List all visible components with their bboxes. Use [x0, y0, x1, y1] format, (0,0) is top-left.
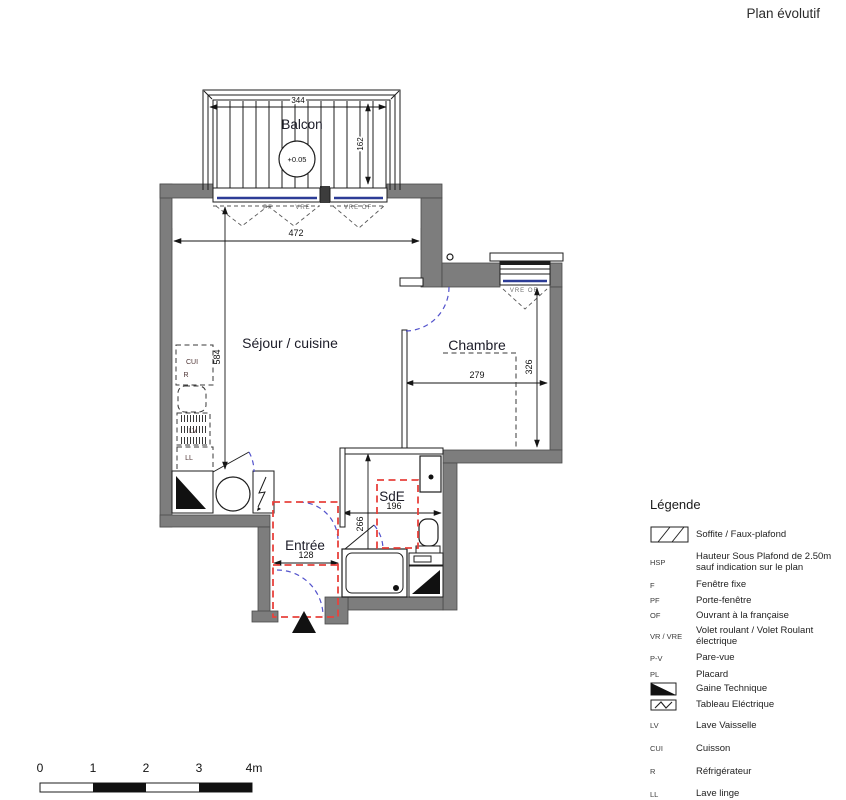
legend-row-pl: PL Placard	[650, 669, 846, 680]
legend-label: Lave linge	[696, 788, 739, 799]
dim-bedroom-width: 279	[469, 370, 484, 380]
legend-row-hsp: HSP Hauteur Sous Plafond de 2.50m sauf i…	[650, 551, 846, 573]
legend-label: Hauteur Sous Plafond de 2.50m	[696, 551, 831, 562]
legend-row-soffit: Soffite / Faux-plafond	[650, 526, 846, 544]
legend-row-pv: P-V Pare-vue	[650, 652, 846, 663]
legend-row-f: F Fenêtre fixe	[650, 579, 846, 590]
shower-room-door-swing	[374, 525, 383, 549]
windows: PF VRE VRE OF VRE OF	[213, 188, 563, 309]
legend-label: Placard	[696, 669, 728, 680]
dim-living-width: 472	[288, 228, 303, 238]
entry-upper-door-swing	[299, 502, 338, 541]
bedroom-door-jamb	[400, 278, 423, 286]
page-title: Plan évolutif	[660, 6, 820, 21]
legend-label: Ouvrant à la française	[696, 610, 789, 621]
toilet	[419, 519, 438, 546]
legend-label: Pare-vue	[696, 652, 735, 663]
legend-key: PF	[650, 596, 696, 605]
legend-row-r: R Réfrigérateur	[650, 766, 846, 777]
scale-tick-4: 4m	[246, 761, 263, 775]
balcony-label: Balcon	[281, 117, 322, 132]
dim-shower-height: 266	[355, 516, 365, 531]
legend-label: Tableau Eléctrique	[696, 699, 774, 710]
kitchen-sink	[178, 386, 206, 412]
legend-key: OF	[650, 611, 696, 620]
fridge-label: R	[183, 372, 188, 379]
legend-row-ll: LL Lave linge	[650, 788, 846, 799]
legend-key: PL	[650, 670, 696, 679]
washer-zone	[177, 447, 213, 473]
water-heater	[216, 477, 250, 511]
scale-tick-1: 1	[90, 761, 97, 775]
dim-balcony-depth: 162	[356, 137, 365, 151]
balcony: +0.05 344 162 Balcon	[203, 90, 400, 190]
washbasin	[420, 456, 441, 492]
bedroom-partition	[402, 330, 407, 450]
legend-key: R	[650, 767, 696, 776]
room-labels: Séjour / cuisine Chambre SdE Entrée	[242, 335, 506, 553]
legend-label: Fenêtre fixe	[696, 579, 746, 590]
soffit-hatch-icon	[650, 526, 690, 544]
window-left	[213, 188, 320, 202]
legend-key: LL	[650, 790, 696, 799]
wall-dot	[447, 254, 453, 260]
scale-tick-2: 2	[143, 761, 150, 775]
legend-label: Gaine Technique	[696, 683, 767, 694]
entry-lower-door-swing	[277, 570, 323, 616]
utility-row	[172, 471, 274, 513]
legend-row-panel: Tableau Eléctrique	[650, 699, 846, 711]
legend-label: Soffite / Faux-plafond	[696, 529, 786, 540]
legend-label: Lave Vaisselle	[696, 720, 757, 731]
legend-row-vr: VR / VRE Volet roulant / Volet Roulant é…	[650, 625, 846, 647]
duct-icon	[650, 682, 678, 696]
bed-outline	[443, 353, 516, 449]
floorplan-page: +0.05 344 162 Balcon PF VRE VRE OF	[0, 0, 846, 800]
legend-label-2: sauf indication sur le plan	[696, 562, 803, 573]
living-door-swing	[249, 452, 254, 472]
legend-label: Réfrigérateur	[696, 766, 751, 777]
entrance-arrow	[292, 611, 316, 633]
legend-row-of: OF Ouvrant à la française	[650, 610, 846, 621]
bedroom-label: Chambre	[448, 337, 506, 353]
hob-label: CUI	[186, 359, 198, 366]
bedroom-door-swing	[405, 287, 449, 331]
legend-key: HSP	[650, 558, 696, 567]
legend-key: CUI	[650, 744, 696, 753]
bedroom-window-sill	[490, 253, 563, 261]
dim-balcony-width: 344	[291, 96, 305, 105]
legend-label: Porte-fenêtre	[696, 595, 751, 606]
shower-room-left-wall	[340, 448, 345, 527]
entry-label: Entrée	[285, 538, 325, 553]
window-mullion	[320, 186, 330, 203]
living-label: Séjour / cuisine	[242, 335, 338, 351]
scale-bar: 0 1 2 3 4m	[37, 761, 263, 792]
legend-label: Volet roulant / Volet Roulant électrique	[696, 625, 846, 647]
window-right	[330, 188, 387, 202]
electrical-panel-icon	[650, 699, 678, 711]
legend-row-lv: LV Lave Vaisselle	[650, 720, 846, 731]
legend-key: VR / VRE	[650, 632, 696, 641]
shower-room-label: SdE	[379, 489, 405, 504]
shower-room-top-wall	[340, 448, 443, 454]
legend-key: LV	[650, 721, 696, 730]
washer-label: LL	[185, 455, 193, 462]
bedroom-window-label: VRE OF	[510, 288, 538, 294]
scale-tick-3: 3	[196, 761, 203, 775]
legend-label: Cuisson	[696, 743, 730, 754]
kitchen: CUI R LV LL	[176, 345, 213, 473]
dim-bedroom-height: 326	[524, 359, 534, 374]
level-marker-value: +0.05	[288, 155, 307, 164]
legend-key: F	[650, 581, 696, 590]
living-door-leaf	[213, 452, 249, 472]
legend-row-cui: CUI Cuisson	[650, 743, 846, 754]
legend-heading: Légende	[650, 497, 846, 512]
scale-tick-0: 0	[37, 761, 44, 775]
legend-row-duct: Gaine Technique	[650, 682, 846, 696]
legend: Légende Soffite / Faux-plafond HSP Haute…	[650, 497, 846, 800]
legend-key: P-V	[650, 654, 696, 663]
legend-row-pf: PF Porte-fenêtre	[650, 595, 846, 606]
dishwasher-label: LV	[189, 428, 197, 435]
